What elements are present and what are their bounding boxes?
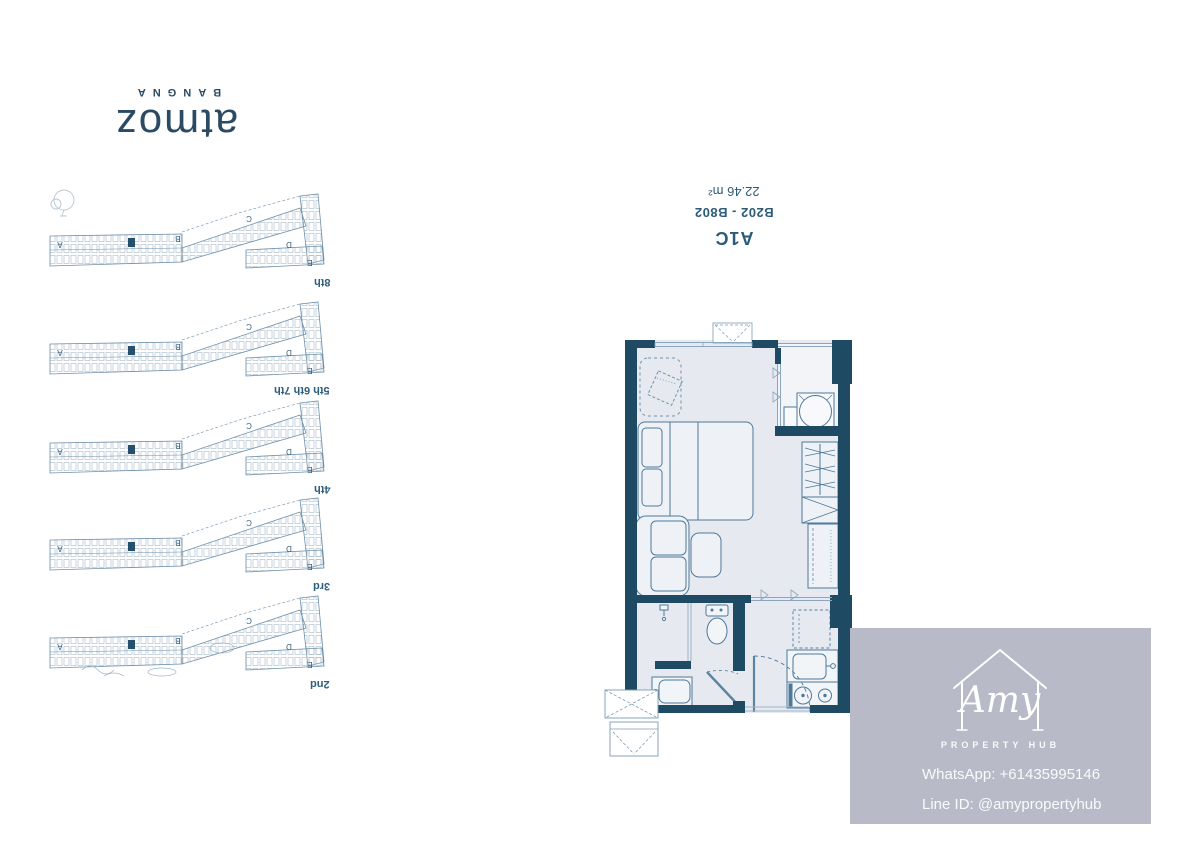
floor-plate-5th-6th-7th: A B C D E 5th 6th 7th	[42, 296, 334, 398]
sofa	[636, 516, 689, 596]
highlighted-unit-marker	[128, 346, 135, 355]
brand-name: atmoz	[96, 103, 256, 145]
wall-shower-stub	[655, 661, 691, 669]
section-label: B	[175, 538, 180, 547]
watermark-logo-subtitle: PROPERTY HUB	[850, 740, 1151, 750]
highlighted-unit-marker	[128, 445, 135, 454]
house-logo-icon: Amy	[940, 638, 1060, 738]
floor-plate-4th: A B C D E 4th	[42, 395, 334, 497]
agent-watermark-card: Amy PROPERTY HUB WhatsApp: +61435995146 …	[850, 628, 1151, 824]
floor-plate-8th: A B C D E 8th	[42, 188, 334, 290]
pillow	[642, 428, 662, 467]
ac-ledge-icon	[713, 323, 752, 343]
watermark-logo-name: Amy	[957, 680, 1041, 721]
section-label: C	[246, 214, 252, 223]
section-label: C	[246, 322, 252, 331]
section-label: D	[286, 240, 292, 249]
building-plate-icon: A B C D E	[42, 188, 332, 288]
section-label: A	[57, 447, 63, 456]
highlighted-unit-marker	[128, 640, 135, 649]
wall-column-top-right	[832, 340, 852, 384]
wall-divider-stub	[775, 348, 781, 364]
wall-bathroom-right	[733, 603, 745, 671]
floorplan-brochure-page: atmoz BANGNA A1C B202 - B802 22.46 m²	[0, 0, 1200, 848]
pillow	[642, 469, 662, 506]
section-label: D	[286, 642, 292, 651]
floor-plate-2nd: A B C D E 2nd	[42, 590, 334, 692]
section-label: D	[286, 544, 292, 553]
wall-left	[625, 340, 637, 713]
unit-area: 22.46 m²	[660, 184, 808, 199]
section-label: E	[307, 660, 312, 669]
section-label: B	[175, 441, 180, 450]
coffee-table	[691, 533, 721, 577]
floor-label: 8th	[314, 276, 331, 288]
unit-info-block: A1C B202 - B802 22.46 m²	[660, 184, 808, 248]
section-label: A	[57, 240, 63, 249]
section-label: C	[246, 616, 252, 625]
building-plate-icon: A B C D E	[42, 395, 332, 495]
unit-type-label: A1C	[660, 227, 808, 248]
floor-plate-3rd: A B C D E 3rd	[42, 492, 334, 594]
wardrobe	[802, 442, 838, 497]
section-label: C	[246, 518, 252, 527]
section-label: E	[307, 562, 312, 571]
section-label: E	[307, 465, 312, 474]
highlighted-unit-marker	[128, 542, 135, 551]
section-label: A	[57, 544, 63, 553]
section-label: B	[175, 342, 180, 351]
section-label: D	[286, 447, 292, 456]
bed	[638, 422, 753, 520]
building-plate-icon: A B C D E	[42, 492, 332, 592]
ac-condenser-units	[605, 690, 658, 756]
section-label: D	[286, 348, 292, 357]
section-label: E	[307, 366, 312, 375]
watermark-whatsapp: WhatsApp: +61435995146	[922, 766, 1100, 783]
toilet	[706, 605, 728, 644]
building-plate-icon: A B C D E	[42, 590, 332, 690]
highlighted-unit-marker	[128, 238, 135, 247]
tree-sketch-icon	[51, 190, 74, 216]
building-plate-icon: A B C D E	[42, 296, 332, 396]
section-label: A	[57, 348, 63, 357]
brand-logo: atmoz BANGNA	[96, 86, 256, 145]
washing-machine	[797, 393, 834, 430]
section-label: B	[175, 636, 180, 645]
floor-label: 2nd	[310, 678, 330, 690]
unit-room-range: B202 - B802	[660, 205, 808, 220]
unit-floor-plan	[603, 316, 855, 760]
cabinet	[802, 497, 838, 523]
section-label: C	[246, 421, 252, 430]
section-label: B	[175, 234, 180, 243]
section-label: A	[57, 642, 63, 651]
wall-balcony-bottom	[775, 426, 850, 436]
section-label: E	[307, 258, 312, 267]
console-counter	[808, 524, 838, 588]
stove	[787, 682, 838, 708]
wall-column-kitchen-right	[830, 595, 852, 628]
kitchen-sink	[787, 650, 838, 682]
wall-bathroom-top	[625, 595, 745, 603]
brand-subtitle: BANGNA	[96, 86, 256, 98]
watermark-line-id: Line ID: @amypropertyhub	[922, 796, 1101, 813]
